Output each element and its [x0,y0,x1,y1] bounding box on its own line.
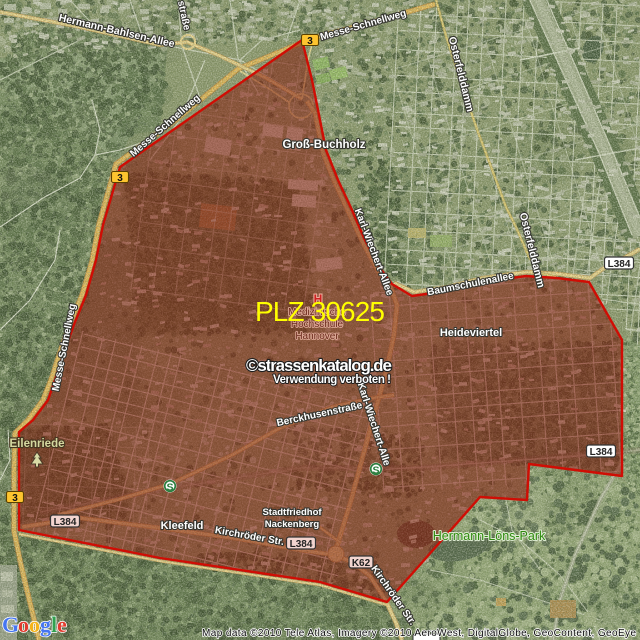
svg-text:Nackenberg: Nackenberg [265,519,320,530]
svg-text:PLZ 30625: PLZ 30625 [255,296,385,327]
svg-text:L384: L384 [590,447,613,458]
svg-text:Map data ©2010 Tele Atlas, Ima: Map data ©2010 Tele Atlas, Imagery ©2010… [202,628,636,639]
svg-text:Heideviertel: Heideviertel [440,327,502,339]
svg-text:S: S [166,482,173,494]
svg-text:3: 3 [12,493,18,504]
svg-text:L384: L384 [54,517,77,528]
svg-text:e: e [57,612,67,637]
svg-text:g: g [40,612,51,637]
svg-text:Kleefeld: Kleefeld [161,520,204,532]
svg-text:Hannover: Hannover [295,331,339,342]
svg-text:K62: K62 [352,558,371,569]
svg-text:Eilenriede: Eilenriede [10,438,65,450]
svg-text:Verwendung verboten !: Verwendung verboten ! [273,374,391,386]
svg-text:3: 3 [307,36,313,47]
svg-text:o: o [29,612,40,637]
svg-text:L384: L384 [290,539,313,550]
svg-text:3: 3 [117,173,123,184]
svg-text:Hermann-Löns-Park: Hermann-Löns-Park [433,529,546,543]
svg-text:G: G [2,612,19,637]
svg-text:Stadtfriedhof: Stadtfriedhof [262,507,322,518]
svg-text:S: S [372,465,379,477]
svg-text:Groß-Buchholz: Groß-Buchholz [282,139,365,151]
svg-text:©strassenkatalog.de: ©strassenkatalog.de [246,356,392,375]
svg-text:o: o [18,612,29,637]
svg-text:L384: L384 [608,259,631,270]
